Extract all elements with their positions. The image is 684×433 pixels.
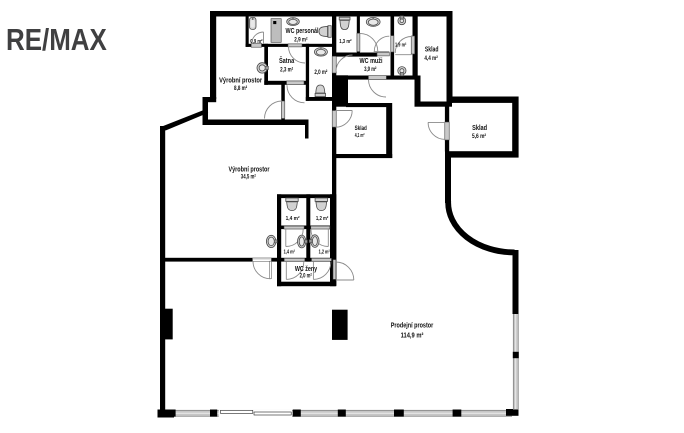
svg-text:4,1 m²: 4,1 m² xyxy=(355,132,365,139)
svg-text:1,4 m²: 1,4 m² xyxy=(286,216,300,222)
svg-text:1,4 m²: 1,4 m² xyxy=(284,250,296,256)
svg-text:4,4 m²: 4,4 m² xyxy=(424,55,437,62)
svg-text:2,9 m²: 2,9 m² xyxy=(294,37,307,44)
svg-text:1,2 m²: 1,2 m² xyxy=(319,250,330,256)
svg-text:Šatna: Šatna xyxy=(279,56,294,65)
svg-text:WC muži: WC muži xyxy=(360,56,383,65)
svg-text:1,3 m²: 1,3 m² xyxy=(339,38,351,45)
svg-text:2,3 m²: 2,3 m² xyxy=(280,67,293,74)
svg-text:5,6 m²: 5,6 m² xyxy=(472,133,486,140)
svg-text:Výrobní prostor: Výrobní prostor xyxy=(228,164,269,173)
svg-text:1,9 m²: 1,9 m² xyxy=(395,42,406,49)
svg-text:Sklad: Sklad xyxy=(355,125,367,132)
svg-text:Sklad: Sklad xyxy=(425,47,439,54)
svg-text:2,0 m²: 2,0 m² xyxy=(314,69,327,76)
svg-text:Sklad: Sklad xyxy=(472,125,487,132)
svg-text:34,5 m²: 34,5 m² xyxy=(241,173,256,180)
svg-text:8,8 m²: 8,8 m² xyxy=(234,85,247,92)
svg-text:WC personál: WC personál xyxy=(286,26,319,35)
svg-text:Prodejní prostor: Prodejní prostor xyxy=(391,321,434,330)
svg-text:Výrobní prostor: Výrobní prostor xyxy=(219,76,262,85)
svg-text:RE/MAX: RE/MAX xyxy=(6,23,107,57)
svg-text:114,9 m²: 114,9 m² xyxy=(401,332,424,339)
svg-text:2,0 m²: 2,0 m² xyxy=(300,272,312,279)
svg-text:1,2 m²: 1,2 m² xyxy=(316,216,329,222)
svg-text:0,9 m²: 0,9 m² xyxy=(250,38,262,45)
svg-text:3,9 m²: 3,9 m² xyxy=(364,66,376,73)
